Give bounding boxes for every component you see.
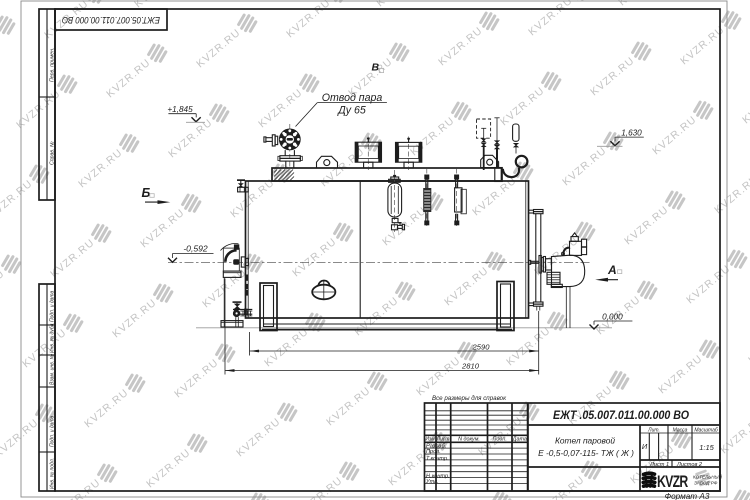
svg-text:Лист: Лист [436,437,450,443]
svg-text:KVZR.RU: KVZR.RU [82,387,131,431]
svg-text:KVZR.RU: KVZR.RU [746,323,750,367]
svg-text:ЕЖТ .05.007.011.00.000 ВО: ЕЖТ .05.007.011.00.000 ВО [553,408,689,422]
svg-text:Масса: Масса [673,428,688,434]
svg-text:KVZR.RU: KVZR.RU [414,355,463,399]
svg-text:KVZR.RU: KVZR.RU [144,447,193,491]
svg-text:В: В [372,62,380,74]
svg-text:KVZR.RU: KVZR.RU [718,413,750,457]
svg-text:Ду 65: Ду 65 [337,105,366,117]
svg-text:KVZR.RU: KVZR.RU [442,265,491,309]
svg-text:KVZR.RU: KVZR.RU [324,385,373,429]
svg-text:+1,845: +1,845 [167,105,193,114]
svg-text:KVZR: KVZR [657,472,688,491]
svg-text:KVZR.RU: KVZR.RU [712,173,750,217]
svg-text:1,630: 1,630 [621,128,642,137]
svg-text:KVZR.RU: KVZR.RU [740,83,750,127]
svg-text:КОТЕЛЬНЫЙ: КОТЕЛЬНЫЙ [693,473,723,480]
svg-text:Все размеры для справок: Все размеры для справок [432,395,507,402]
svg-text:Лист 1: Лист 1 [649,462,669,468]
svg-text:Подп. и дата: Подп. и дата [50,290,56,322]
svg-text:KVZR.RU: KVZR.RU [110,297,159,341]
svg-text:Формат А3: Формат А3 [665,492,710,500]
svg-text:ЗАВОД РФ: ЗАВОД РФ [694,481,718,486]
svg-text:KVZR.RU: KVZR.RU [104,57,153,101]
svg-text:Е -0,5-0,07-115- ТЖ ( Ж ): Е -0,5-0,07-115- ТЖ ( Ж ) [538,448,634,458]
svg-text:KVZR.RU: KVZR.RU [0,268,7,312]
svg-text:KVZR.RU: KVZR.RU [262,326,311,370]
svg-text:А: А [607,263,617,277]
svg-text:Инв. № дубл.: Инв. № дубл. [50,322,56,353]
svg-text:Дата: Дата [512,437,527,443]
svg-text:KVZR.RU: KVZR.RU [166,117,215,161]
svg-text:Инв. № подл.: Инв. № подл. [50,458,56,489]
svg-text:1:15: 1:15 [699,443,714,452]
svg-text:KVZR.RU: KVZR.RU [228,177,277,221]
svg-text:KVZR.RU: KVZR.RU [20,327,69,371]
svg-text:Справ. №: Справ. № [50,141,56,165]
svg-text:И: И [642,442,648,451]
svg-text:Изм: Изм [425,437,435,443]
svg-text:KVZR.RU: KVZR.RU [684,263,733,307]
svg-text:KVZR.RU: KVZR.RU [436,25,485,69]
svg-text:KVZR.RU: KVZR.RU [290,236,339,280]
svg-text:2810: 2810 [461,362,480,371]
svg-text:KVZR.RU: KVZR.RU [0,178,35,222]
svg-text:Утв.: Утв. [425,479,439,485]
svg-text:KVZR.RU: KVZR.RU [408,115,457,159]
svg-text:KVZR.RU: KVZR.RU [622,204,671,248]
svg-text:N докум.: N докум. [458,437,480,443]
svg-text:KVZR.RU: KVZR.RU [76,147,125,191]
svg-text:Перв. примен.: Перв. примен. [50,48,56,82]
svg-text:KVZR.RU: KVZR.RU [588,55,637,99]
svg-text:KVZR.RU: KVZR.RU [352,295,401,339]
svg-text:KVZR.RU: KVZR.RU [234,416,283,460]
svg-text:Взам. инв. №: Взам. инв. № [50,353,56,385]
svg-text:KVZR.RU: KVZR.RU [498,85,547,129]
svg-text:Подп. и дата: Подп. и дата [50,415,56,447]
svg-text:KVZR.RU: KVZR.RU [172,357,221,401]
svg-text:Т.контр.: Т.контр. [426,456,449,462]
svg-text:KVZR.RU: KVZR.RU [656,353,705,397]
svg-text:Котел паровой: Котел паровой [555,436,615,446]
svg-text:KVZR.RU: KVZR.RU [650,114,699,158]
svg-text:KVZR.RU: KVZR.RU [0,29,1,73]
svg-text:2590: 2590 [472,342,491,351]
svg-text:Пров.: Пров. [426,449,441,455]
svg-text:ЕЖТ.05.007.011.00.000 ВО: ЕЖТ.05.007.011.00.000 ВО [62,15,160,25]
svg-text:KVZR.RU: KVZR.RU [526,0,575,38]
svg-text:0,000: 0,000 [602,312,623,321]
svg-text:Масштаб: Масштаб [694,428,718,434]
svg-text:KVZR.RU: KVZR.RU [138,207,187,251]
svg-text:KVZR.RU: KVZR.RU [560,145,609,189]
svg-text:KVZR.RU: KVZR.RU [54,477,103,500]
svg-text:Лит.: Лит. [647,428,660,434]
svg-text:Листов 2: Листов 2 [676,462,703,468]
svg-text:-0,592: -0,592 [183,244,208,254]
svg-text:KVZR.RU: KVZR.RU [538,474,587,500]
svg-text:KVZR.RU: KVZR.RU [296,475,345,500]
svg-text:Б: Б [142,186,151,200]
svg-text:KVZR.RU: KVZR.RU [194,27,243,71]
svg-text:KVZR.RU: KVZR.RU [284,0,333,40]
svg-text:Подп.: Подп. [493,437,507,443]
